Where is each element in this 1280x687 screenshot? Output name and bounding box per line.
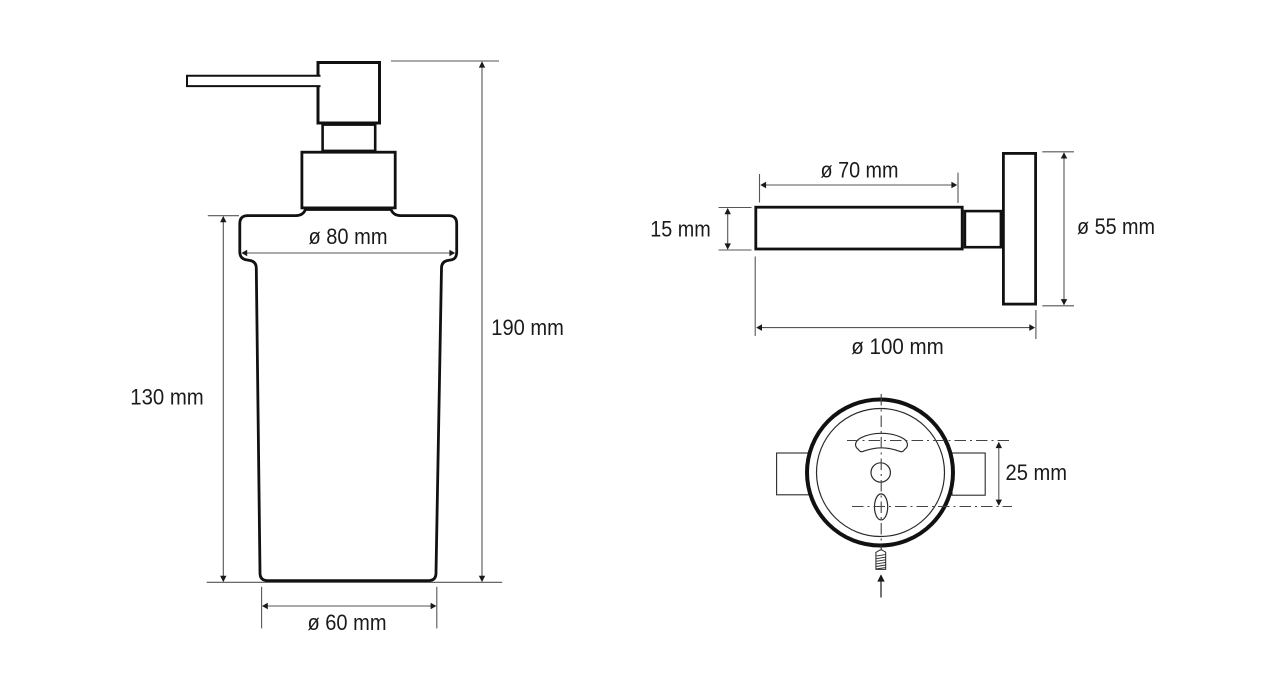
svg-text:15 mm: 15 mm (650, 217, 711, 242)
svg-text:ø 80 mm: ø 80 mm (309, 224, 388, 249)
svg-text:ø 70 mm: ø 70 mm (821, 157, 899, 182)
svg-text:ø 100 mm: ø 100 mm (851, 334, 944, 359)
svg-text:130 mm: 130 mm (130, 385, 204, 410)
svg-text:25 mm: 25 mm (1006, 460, 1068, 485)
svg-text:ø 55 mm: ø 55 mm (1077, 214, 1155, 239)
svg-text:190 mm: 190 mm (491, 315, 564, 340)
svg-text:ø 60 mm: ø 60 mm (308, 610, 387, 635)
